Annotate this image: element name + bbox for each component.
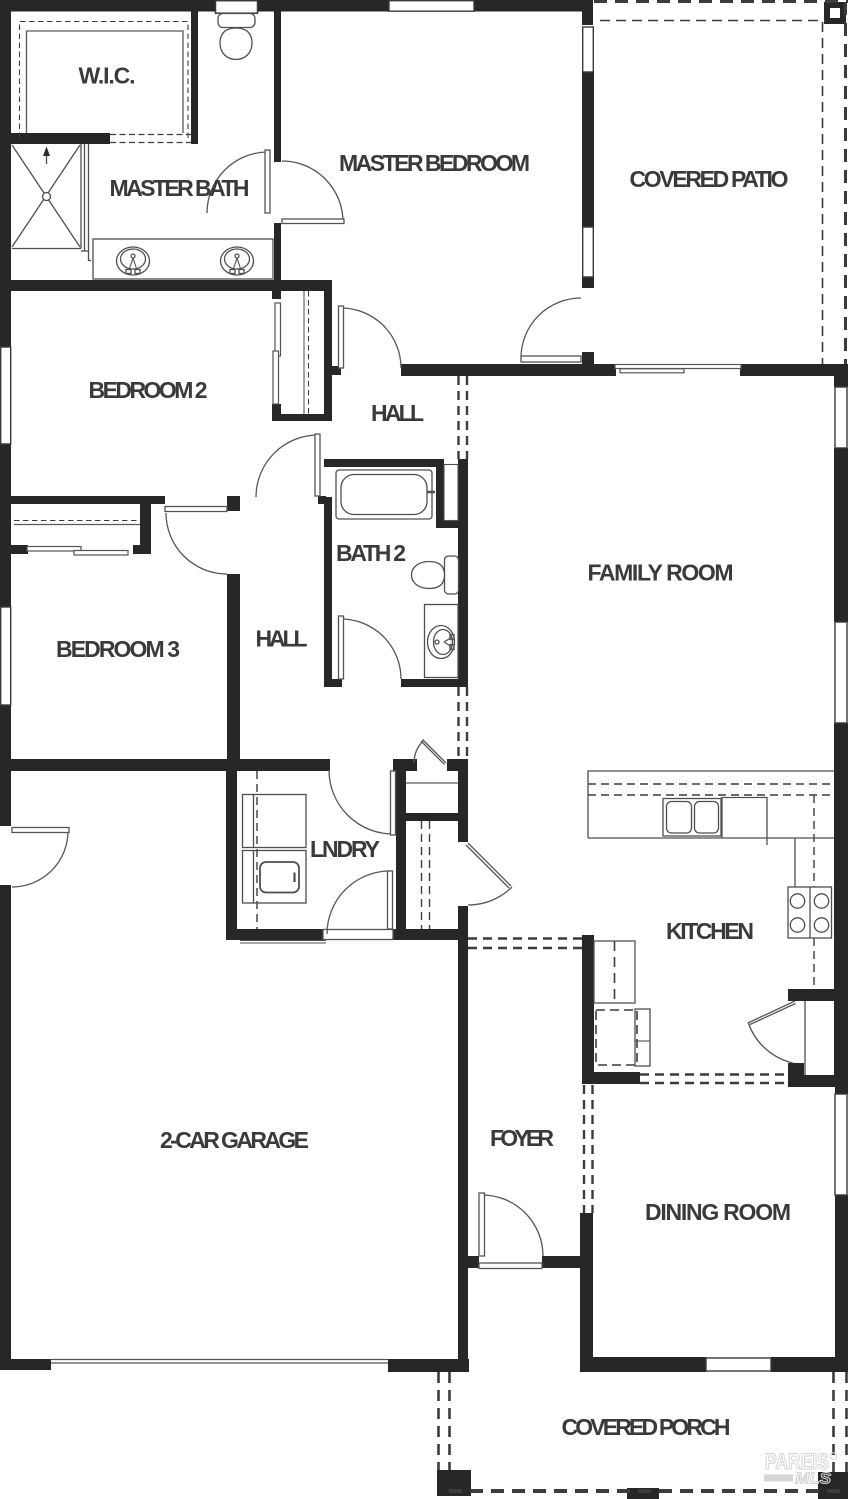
- svg-text:FAMILY ROOM: FAMILY ROOM: [588, 560, 734, 586]
- svg-text:2-CAR GARAGE: 2-CAR GARAGE: [160, 1127, 309, 1153]
- svg-text:MLS: MLS: [795, 1471, 831, 1488]
- svg-text:COVERED PATIO: COVERED PATIO: [630, 166, 789, 192]
- svg-text:MASTER BEDROOM: MASTER BEDROOM: [339, 150, 530, 176]
- svg-text:BEDROOM 3: BEDROOM 3: [56, 636, 180, 662]
- svg-text:HALL: HALL: [371, 400, 424, 426]
- svg-text:KITCHEN: KITCHEN: [666, 918, 754, 944]
- svg-text:FOYER: FOYER: [490, 1125, 554, 1151]
- svg-text:COVERED PORCH: COVERED PORCH: [562, 1414, 731, 1440]
- svg-text:BATH 2: BATH 2: [336, 540, 406, 566]
- svg-text:HALL: HALL: [256, 626, 308, 652]
- svg-text:W.I.C.: W.I.C.: [79, 63, 136, 89]
- svg-text:MASTER BATH: MASTER BATH: [110, 175, 250, 201]
- svg-text:BEDROOM 2: BEDROOM 2: [89, 377, 208, 403]
- svg-text:DINING ROOM: DINING ROOM: [645, 1199, 791, 1225]
- svg-text:LNDRY: LNDRY: [310, 836, 380, 862]
